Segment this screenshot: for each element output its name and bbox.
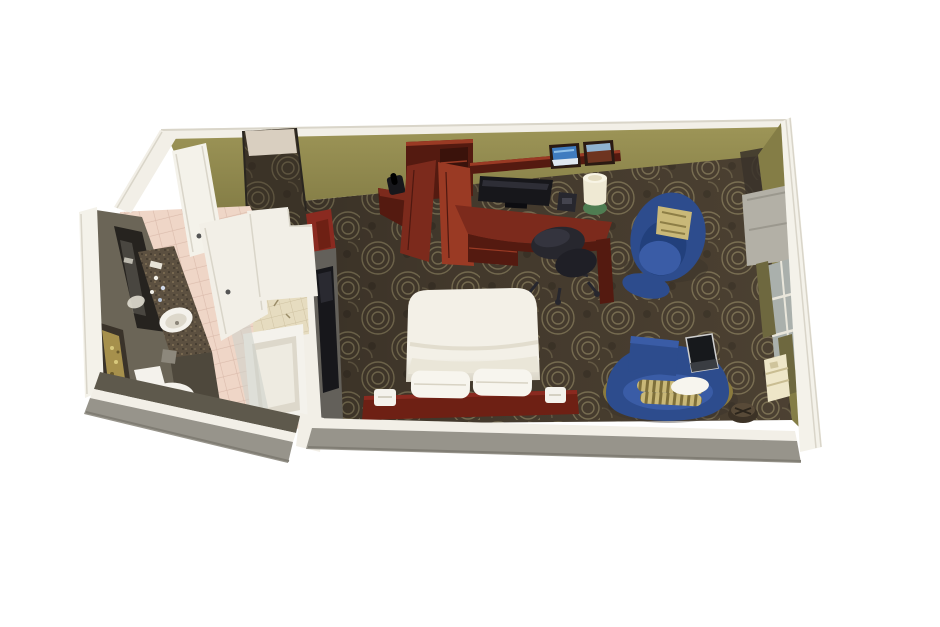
alarm-clock bbox=[557, 192, 577, 212]
framed-picture-landscape bbox=[583, 140, 615, 166]
accent-pillow bbox=[656, 206, 692, 240]
entry-threshold bbox=[245, 129, 297, 156]
laptop bbox=[686, 334, 718, 372]
wall-plate bbox=[161, 349, 177, 364]
framed-picture-beach bbox=[549, 143, 581, 169]
table-lamp bbox=[583, 173, 607, 215]
hotel-room-floorplan-render bbox=[0, 0, 940, 627]
floorplan-stage bbox=[0, 0, 940, 627]
entry-doorway bbox=[243, 128, 306, 214]
ptac-unit bbox=[764, 354, 790, 402]
